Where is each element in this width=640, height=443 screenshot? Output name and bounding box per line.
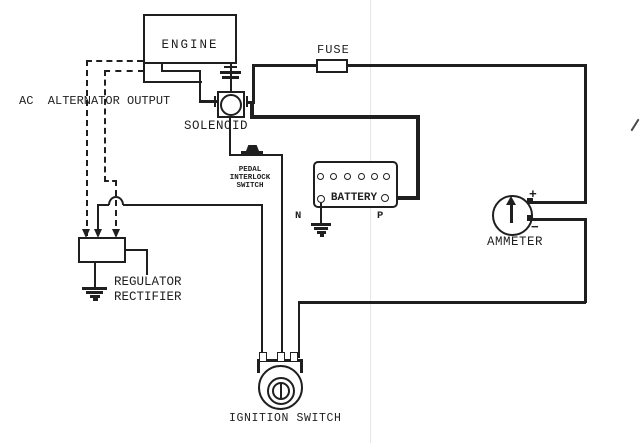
spark-plug-icon <box>224 66 237 68</box>
battery-cell-cap <box>330 173 337 180</box>
ammeter-needle-arrow <box>506 196 516 205</box>
solenoid-label: SOLENOID <box>184 120 248 134</box>
wire-ignition-middle <box>281 154 283 358</box>
label-pointer-line <box>126 249 148 251</box>
regulator-ground-stem <box>94 263 96 287</box>
regulator-rectifier-box <box>78 237 126 263</box>
ground-icon <box>311 223 331 226</box>
ignition-crown-side <box>300 359 303 373</box>
cable-solenoid-battery <box>250 115 420 119</box>
label-pointer-line <box>146 249 148 275</box>
ignition-crown-tooth <box>290 352 298 361</box>
regulator-label-line2: RECTIFIER <box>114 291 182 305</box>
wire-fuse-left <box>252 64 318 67</box>
ground-icon <box>82 287 107 290</box>
wire-crossover-hop <box>108 196 124 205</box>
ammeter-needle <box>510 203 513 223</box>
wire-right-side-lower <box>584 218 587 303</box>
wire-ammeter-positive <box>532 201 586 204</box>
ground-icon <box>93 298 98 301</box>
ignition-crown-side <box>257 359 260 373</box>
wire-segment <box>161 62 163 72</box>
ammeter-plus-label: + <box>529 188 537 202</box>
regulator-label-line1: REGULATOR <box>114 276 182 290</box>
battery-cell-cap <box>317 173 324 180</box>
ground-icon <box>86 291 103 294</box>
battery-cell-cap <box>383 173 390 180</box>
wire-bottom-return <box>298 301 586 304</box>
battery-positive-terminal <box>381 194 389 202</box>
fuse-label: FUSE <box>317 44 350 57</box>
wire-segment <box>143 81 202 83</box>
wire-ignition-left <box>261 204 263 358</box>
wire-right-side-upper <box>584 64 587 204</box>
fuse-symbol <box>316 59 348 73</box>
ignition-crown-tooth <box>259 352 267 361</box>
solenoid-terminal-tick <box>214 96 216 107</box>
wire-pedal-switch <box>229 154 283 156</box>
pedal-switch-base <box>241 151 263 154</box>
wire-fuse-right <box>348 64 586 67</box>
battery-label: BATTERY <box>327 192 381 204</box>
solenoid-coil-circle <box>220 94 242 116</box>
wire-ignition-right <box>298 301 300 358</box>
dashed-wire-alternator <box>86 60 88 236</box>
wire-solenoid-to-pedal-switch <box>229 116 231 156</box>
dashed-wire-alternator <box>86 60 143 62</box>
pedal-switch-button-icon <box>246 145 259 151</box>
battery-cell-cap <box>344 173 351 180</box>
battery-negative-terminal <box>317 195 325 203</box>
ground-icon <box>314 227 328 230</box>
wire-ignition-to-regulator <box>97 204 99 230</box>
wire-solenoid-to-fuse <box>252 64 255 104</box>
wire-segment <box>161 70 201 72</box>
dashed-wire-alternator <box>104 70 106 182</box>
ammeter-minus-label: − <box>531 221 539 235</box>
ground-icon <box>320 234 324 237</box>
pedal-label-line1: PEDAL <box>239 166 262 174</box>
cable-solenoid-battery <box>416 115 420 200</box>
battery-ground-stem <box>320 203 322 223</box>
ignition-switch-label: IGNITION SWITCH <box>229 413 342 426</box>
wiring-diagram: ENGINE SOLENOID FUSE BATTERY N P <box>0 0 640 443</box>
ignition-crown-tooth <box>277 352 285 361</box>
battery-cell-cap <box>358 173 365 180</box>
pedal-interlock-switch-label: PEDALINTERLOCKSWITCH <box>220 166 280 190</box>
dashed-wire-alternator <box>104 70 144 72</box>
wire-segment <box>143 62 145 83</box>
battery-p-label: P <box>377 211 383 223</box>
ignition-key-slot <box>280 383 282 399</box>
stray-pen-mark <box>630 119 639 132</box>
wire-ignition-to-regulator <box>123 204 261 206</box>
engine-label: ENGINE <box>143 39 237 53</box>
wire-engine-to-solenoid <box>199 100 219 103</box>
battery-n-label: N <box>295 211 301 223</box>
spark-plug-icon <box>222 76 239 79</box>
pedal-label-line2: INTERLOCK <box>230 174 271 182</box>
battery-cell-cap <box>371 173 378 180</box>
wire-ammeter-negative <box>532 218 586 221</box>
ammeter-label: AMMETER <box>487 236 543 250</box>
dashed-wire-alternator <box>115 180 117 236</box>
ac-alternator-output-label: AC ALTERNATOR OUTPUT <box>19 95 170 108</box>
pedal-label-line3: SWITCH <box>236 182 263 190</box>
spark-plug-icon <box>220 71 241 74</box>
wire-segment <box>199 70 201 103</box>
